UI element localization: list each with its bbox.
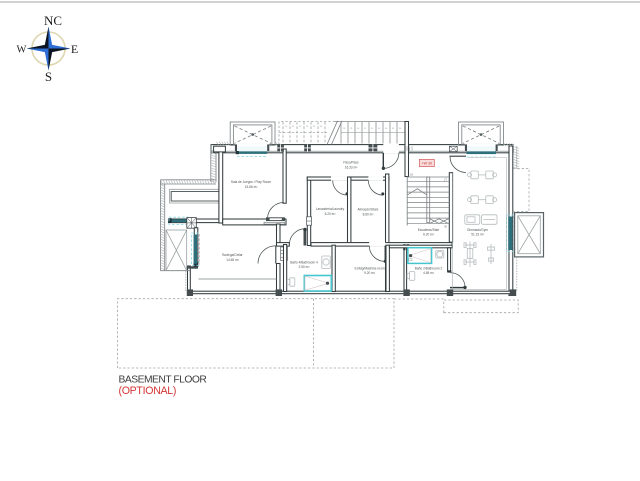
svg-text:NC: NC (44, 13, 62, 28)
svg-text:(OPTIONAL): (OPTIONAL) (119, 385, 177, 397)
svg-text:S: S (45, 69, 52, 84)
svg-text:Lavandería/Laundry: Lavandería/Laundry (316, 207, 345, 211)
svg-text:Baño 2/Bathroom 2: Baño 2/Bathroom 2 (415, 267, 443, 271)
svg-text:4.65 m²: 4.65 m² (423, 271, 434, 275)
svg-text:Sala de Juegos / Play Room: Sala de Juegos / Play Room (231, 180, 272, 184)
svg-text:8.60 m²: 8.60 m² (363, 213, 374, 217)
svg-text:6.20 m²: 6.20 m² (423, 233, 434, 237)
svg-text:2.50 m²: 2.50 m² (299, 265, 310, 269)
svg-text:16.33 m²: 16.33 m² (345, 166, 358, 170)
svg-text:S.Mág/Máchine room: S.Mág/Máchine room (354, 267, 385, 271)
svg-text:Paso/Pass: Paso/Pass (343, 161, 359, 165)
svg-text:14.65 m²: 14.65 m² (226, 258, 239, 262)
svg-text:+W 30: +W 30 (422, 162, 433, 166)
svg-text:15.66 m²: 15.66 m² (245, 185, 258, 189)
svg-text:W: W (17, 45, 27, 56)
svg-text:Gimnasio/Gym: Gimnasio/Gym (467, 228, 488, 232)
svg-text:51.15 m²: 51.15 m² (471, 233, 484, 237)
svg-text:Baño 4/Bathroom 4: Baño 4/Bathroom 4 (290, 261, 318, 265)
svg-text:Escaleras/Stair: Escaleras/Stair (418, 228, 440, 232)
svg-text:6.20 m²: 6.20 m² (325, 212, 336, 216)
svg-text:Bodega/Cellar: Bodega/Cellar (222, 253, 243, 257)
svg-text:E: E (71, 42, 78, 56)
svg-text:Almacén/Store: Almacén/Store (358, 208, 379, 212)
svg-text:BASEMENT FLOOR: BASEMENT FLOOR (119, 375, 207, 386)
svg-text:9.20 m²: 9.20 m² (364, 271, 375, 275)
